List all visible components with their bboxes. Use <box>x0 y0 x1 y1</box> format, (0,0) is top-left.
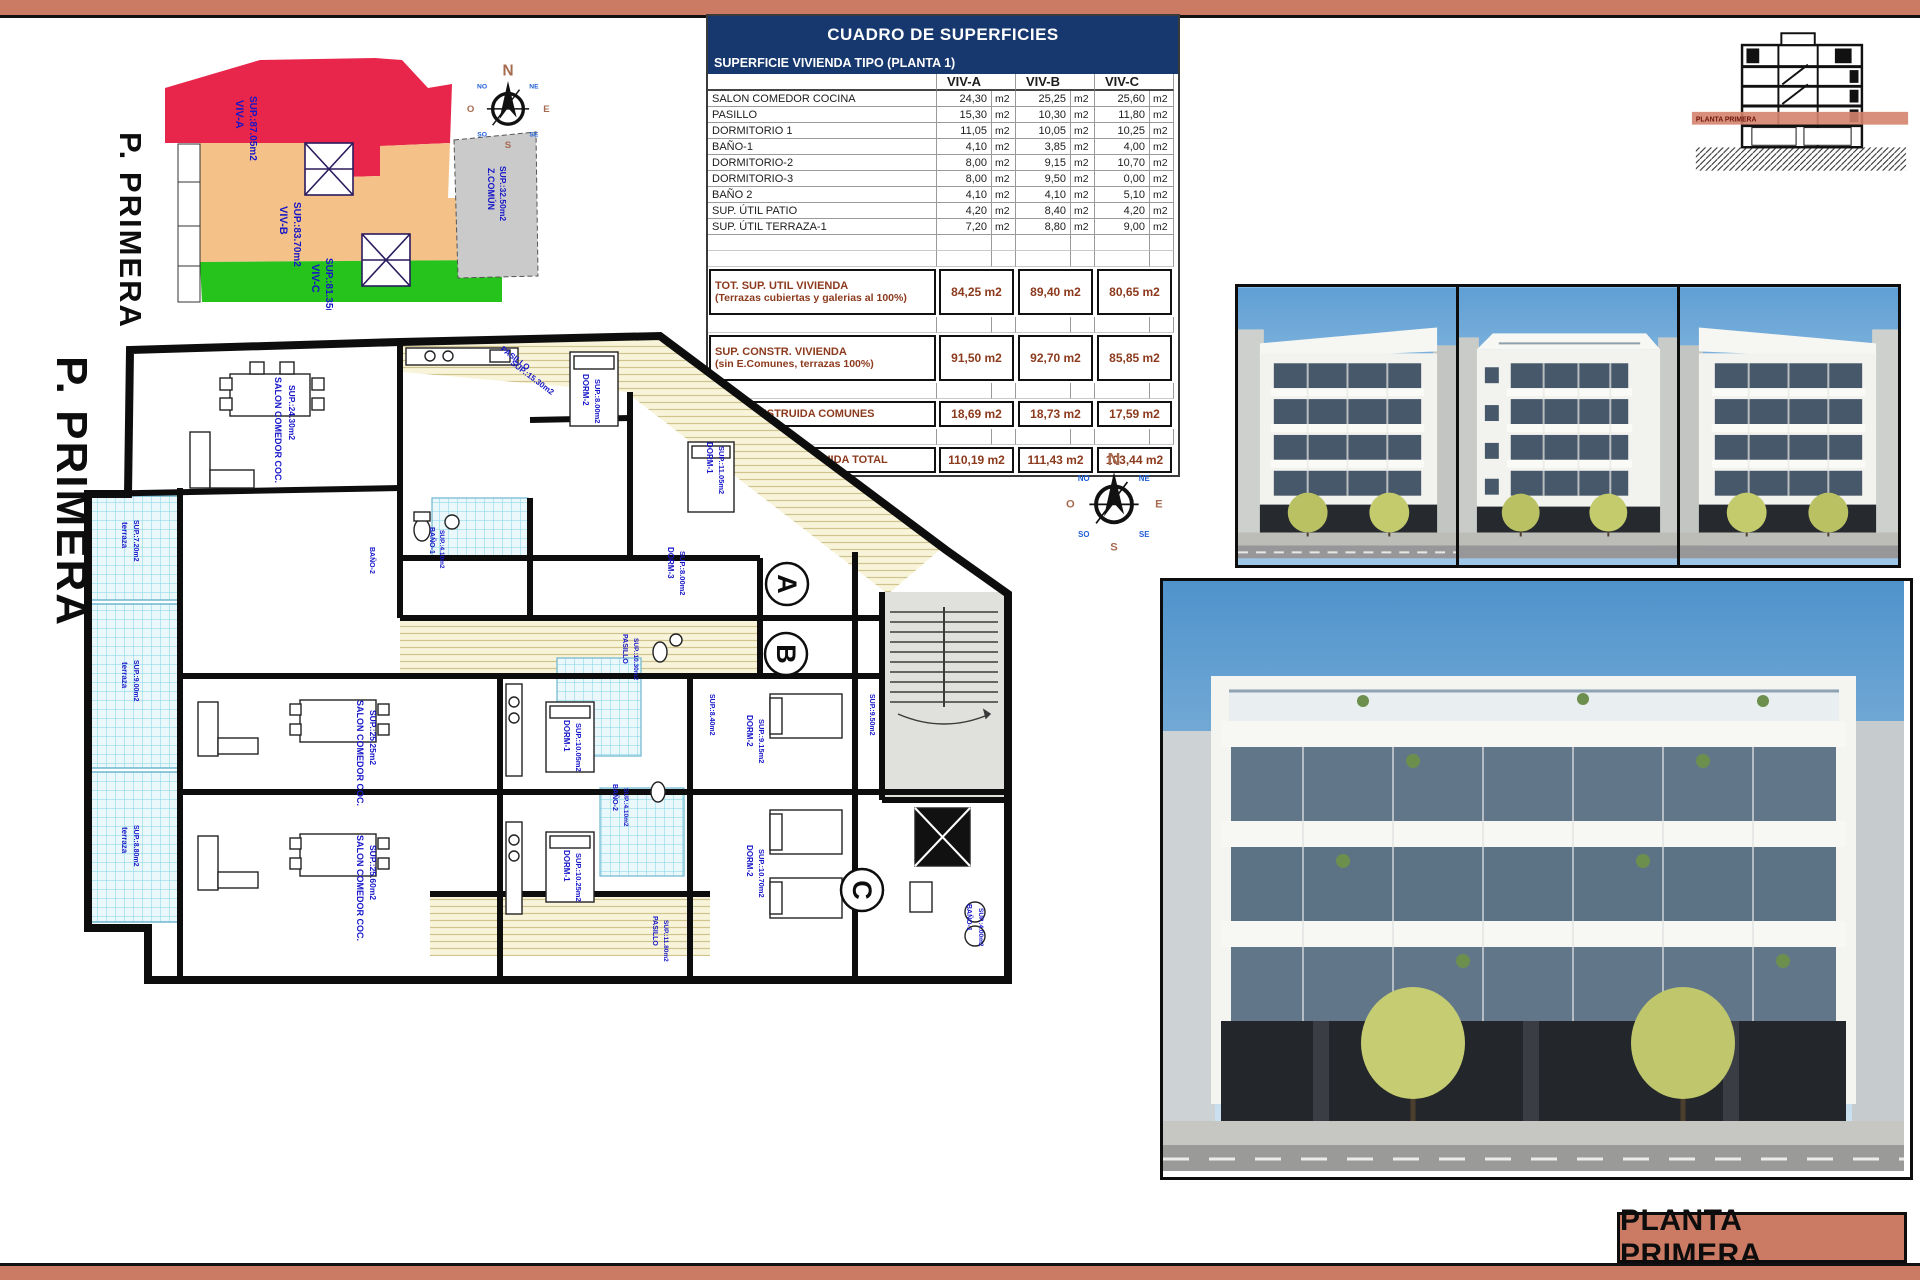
unit-cell: m2 <box>1150 203 1174 219</box>
total-value-cell: 84,25 m2 <box>939 269 1014 315</box>
zone-viv-b-label: VIV-B <box>277 206 289 235</box>
room-label: SALON COMEDOR COC. <box>355 700 365 806</box>
unit-cell: m2 <box>992 171 1016 187</box>
value-cell: 15,30 <box>937 107 992 123</box>
floor-plan-drawing: SALON COMEDOR COC.SUP.:24.30m2PASILLOSUP… <box>70 322 1020 994</box>
total-value-cell: 18,73 m2 <box>1018 401 1093 427</box>
section-band-label: PLANTA PRIMERA <box>1696 117 1757 124</box>
compass-no: NO <box>1078 474 1090 483</box>
spacer-cell <box>1071 383 1095 399</box>
compass-ne: NE <box>1139 474 1150 483</box>
unit-cell: m2 <box>1150 171 1174 187</box>
row-label: SUP. ÚTIL TERRAZA-1 <box>708 219 937 235</box>
zone-viv-b-area: SUP.:83.70m2 <box>291 202 302 267</box>
areas-table-subtitle: SUPERFICIE VIVIENDA TIPO (PLANTA 1) <box>708 53 1178 74</box>
value-cell: 0,00 <box>1095 171 1150 187</box>
room-label: SUP.:10.05m2 <box>574 723 583 772</box>
room-label: DORM-2 <box>745 715 754 747</box>
total-row-label: TOT. SUP. UTIL VIVIENDA(Terrazas cubiert… <box>709 269 936 315</box>
compass-ne: NE <box>529 84 539 91</box>
facade-render-1 <box>1238 287 1459 565</box>
table-corner-cell <box>708 74 937 91</box>
value-cell: 4,00 <box>1095 139 1150 155</box>
spacer-cell <box>1095 429 1150 445</box>
compass-se: SE <box>1139 530 1149 539</box>
spacer-cell <box>1016 317 1071 333</box>
unit-cell: m2 <box>1071 91 1095 107</box>
room-label: SUP.:9.00m2 <box>132 660 139 702</box>
spacer-cell <box>708 235 937 251</box>
value-cell: 9,15 <box>1016 155 1071 171</box>
facade-render-3 <box>1680 287 1898 565</box>
compass-so: SO <box>1078 530 1089 539</box>
unit-marker-letter: A <box>772 574 802 594</box>
unit-cell: m2 <box>992 155 1016 171</box>
unit-cell: m2 <box>1150 219 1174 235</box>
compass-e: E <box>543 104 550 115</box>
room-label: SUP.:9.15m2 <box>757 719 766 763</box>
unit-cell: m2 <box>1071 219 1095 235</box>
value-cell: 25,25 <box>1016 91 1071 107</box>
room-label: SUP.:24.30m2 <box>287 385 297 440</box>
spacer-cell <box>1150 429 1174 445</box>
spacer-cell <box>1071 251 1095 267</box>
row-label: PASILLO <box>708 107 937 123</box>
room-label: SUP.:8.40m2 <box>708 694 715 736</box>
total-value-cell: 85,85 m2 <box>1097 335 1172 381</box>
spacer-cell <box>1071 235 1095 251</box>
row-label: DORMITORIO-3 <box>708 171 937 187</box>
value-cell: 8,80 <box>1016 219 1071 235</box>
value-cell: 4,20 <box>937 203 992 219</box>
room-label: DORM-1 <box>705 442 714 474</box>
unit-cell: m2 <box>992 139 1016 155</box>
compass-n: N <box>1108 449 1121 469</box>
room-label: SUP.:10.25m2 <box>574 853 583 902</box>
spacer-cell <box>992 235 1016 251</box>
value-cell: 10,05 <box>1016 123 1071 139</box>
compass-needle <box>1089 472 1138 524</box>
spacer-cell <box>1095 317 1150 333</box>
value-cell: 11,80 <box>1095 107 1150 123</box>
compass-s: S <box>1110 541 1118 553</box>
zone-comun-label: Z.COMÚN <box>486 168 497 210</box>
unit-cell: m2 <box>1071 203 1095 219</box>
section-ground-hatch <box>1696 147 1906 171</box>
spacer-cell <box>1016 429 1071 445</box>
room-label: SALON COMEDOR COC. <box>273 377 283 483</box>
total-value-cell: 92,70 m2 <box>1018 335 1093 381</box>
zone-comun-area: SUP.:32.50m2 <box>498 166 508 221</box>
sheet-title: PLANTA PRIMERA <box>1620 1204 1888 1272</box>
value-cell: 4,10 <box>937 187 992 203</box>
value-cell: 4,10 <box>937 139 992 155</box>
room-label: SUP.:4.10m2 <box>438 530 445 569</box>
spacer-cell <box>1016 251 1071 267</box>
row-label: BAÑO-1 <box>708 139 937 155</box>
value-cell: 24,30 <box>937 91 992 107</box>
unit-marker-letter: C <box>847 880 877 900</box>
unit-cell: m2 <box>1150 187 1174 203</box>
facade-render-1-image <box>1238 287 1456 559</box>
room-label: DORM-2 <box>581 374 590 406</box>
value-cell: 4,10 <box>1016 187 1071 203</box>
value-cell: 10,30 <box>1016 107 1071 123</box>
main-facade-render <box>1160 578 1913 1180</box>
storefront <box>1221 1021 1846 1121</box>
spacer-cell <box>1071 429 1095 445</box>
compass-se: SE <box>529 132 538 139</box>
row-label: DORMITORIO-2 <box>708 155 937 171</box>
unit-cell: m2 <box>992 219 1016 235</box>
section-building <box>1742 33 1862 147</box>
room-label: SUP.:11.80m2 <box>662 920 669 962</box>
unit-cell: m2 <box>1150 155 1174 171</box>
total-value-cell: 80,65 m2 <box>1097 269 1172 315</box>
room-label: BAÑO-2 <box>611 784 620 811</box>
room-label: terraza <box>120 827 129 854</box>
room-label: SUP.:9.50m2 <box>868 694 875 736</box>
spacer-cell <box>937 235 992 251</box>
room-label: SUP.:10.30m2 <box>632 638 639 681</box>
unit-cell: m2 <box>992 123 1016 139</box>
room-label: SUP.:10.70m2 <box>757 849 766 898</box>
spacer-cell <box>1071 317 1095 333</box>
room-label: terraza <box>120 662 129 689</box>
compass-e: E <box>1155 499 1163 511</box>
room-label: DORM-1 <box>562 720 571 752</box>
row-label: SUP. ÚTIL PATIO <box>708 203 937 219</box>
facade-render-3-image <box>1680 287 1898 559</box>
room-label: SUP.:8.00m2 <box>678 551 687 595</box>
value-cell: 9,00 <box>1095 219 1150 235</box>
zone-viv-a-label: VIV-A <box>233 100 245 129</box>
column-header: VIV-B <box>1016 74 1095 91</box>
zone-viv-c-area: SUP.:81.35m2 <box>323 258 334 310</box>
room-label: SUP.:25.60m2 <box>368 845 378 900</box>
compass-so: SO <box>477 132 487 139</box>
spacer-cell <box>1150 235 1174 251</box>
room-label: BAÑO-1 <box>965 904 974 931</box>
value-cell: 10,25 <box>1095 123 1150 139</box>
unit-cell: m2 <box>992 187 1016 203</box>
room-label: SUP.:4.00m2 <box>977 908 984 947</box>
room-label: DORM-3 <box>666 547 675 579</box>
value-cell: 10,70 <box>1095 155 1150 171</box>
value-cell: 4,20 <box>1095 203 1150 219</box>
column-header: VIV-C <box>1095 74 1174 91</box>
unit-cell: m2 <box>1071 171 1095 187</box>
unit-cell: m2 <box>1150 107 1174 123</box>
total-value-cell: 89,40 m2 <box>1018 269 1093 315</box>
room-label: DORM-1 <box>562 850 571 882</box>
floor-bands <box>1221 721 1846 1021</box>
unit-cell: m2 <box>992 107 1016 123</box>
compass-n: N <box>502 62 513 79</box>
spacer-cell <box>992 251 1016 267</box>
row-label: DORMITORIO 1 <box>708 123 937 139</box>
room-label: SUP.:7.20m2 <box>132 520 139 562</box>
room-label: SUP.:25.25m2 <box>368 710 378 765</box>
row-label: SALON COMEDOR COCINA <box>708 91 937 107</box>
compass-no: NO <box>477 84 487 91</box>
room-label: PASILLO <box>651 916 658 946</box>
unit-cell: m2 <box>1071 107 1095 123</box>
room-label: SUP.:8.00m2 <box>593 379 602 423</box>
value-cell: 8,00 <box>937 171 992 187</box>
unit-cell: m2 <box>1071 155 1095 171</box>
roof-terrace <box>1229 689 1839 721</box>
spacer-cell <box>1150 317 1174 333</box>
spacer-cell <box>708 251 937 267</box>
row-label: BAÑO 2 <box>708 187 937 203</box>
zone-viv-c-label: VIV-C <box>309 264 321 293</box>
spacer-cell <box>1150 383 1174 399</box>
unit-marker-letter: B <box>771 644 801 664</box>
value-cell: 7,20 <box>937 219 992 235</box>
room-label: SUP.:4.10m2 <box>622 788 629 827</box>
room-label: DORM-2 <box>745 845 754 877</box>
zone-viv-a-area: SUP.:87.05m2 <box>247 96 258 161</box>
unit-cell: m2 <box>1150 91 1174 107</box>
total-value-cell: 17,59 m2 <box>1097 401 1172 427</box>
value-cell: 9,50 <box>1016 171 1071 187</box>
plan-sheet: P. PRIMERA <box>0 0 1920 1280</box>
compass-needle <box>487 81 529 125</box>
main-facade-render-image <box>1163 581 1904 1171</box>
value-cell: 8,00 <box>937 155 992 171</box>
spacer-cell <box>1095 235 1150 251</box>
unit-cell: m2 <box>992 203 1016 219</box>
room-label: SUP.:8.80m2 <box>132 825 139 867</box>
unit-cell: m2 <box>1150 123 1174 139</box>
compass-o: O <box>1066 499 1075 511</box>
unit-cell: m2 <box>1071 139 1095 155</box>
value-cell: 8,40 <box>1016 203 1071 219</box>
spacer-cell <box>1095 383 1150 399</box>
spacer-cell <box>1150 251 1174 267</box>
compass-rose-main: N NE E SE S SO O NO <box>1058 445 1170 557</box>
building-section-drawing: PLANTA PRIMERA <box>1688 28 1914 180</box>
siteplan-left-strip <box>178 144 200 302</box>
unit-cell: m2 <box>1071 123 1095 139</box>
value-cell: 3,85 <box>1016 139 1071 155</box>
room-label: SUP.:11.05m2 <box>717 446 726 494</box>
unit-cell: m2 <box>1071 187 1095 203</box>
compass-s: S <box>505 140 512 151</box>
spacer-cell <box>937 251 992 267</box>
unit-cell: m2 <box>1150 139 1174 155</box>
room-label: SALON COMEDOR COC. <box>355 835 365 941</box>
room-label: BAÑO-2 <box>368 547 377 574</box>
value-cell: 11,05 <box>937 123 992 139</box>
facade-render-2 <box>1459 287 1680 565</box>
column-header: VIV-A <box>937 74 1016 91</box>
room-label: BAÑO-1 <box>428 527 437 554</box>
facade-render-strip <box>1235 284 1901 568</box>
value-cell: 25,60 <box>1095 91 1150 107</box>
room-label: PASILLO <box>621 634 628 664</box>
spacer-cell <box>1095 251 1150 267</box>
zone-viv-c-shape <box>200 260 502 302</box>
areas-table-title: CUADRO DE SUPERFICIES <box>708 16 1178 53</box>
facade-render-2-image <box>1459 287 1677 559</box>
spacer-cell <box>1016 383 1071 399</box>
compass-rose-top: N NE E SE S SO O NO <box>460 58 556 154</box>
unit-cell: m2 <box>992 91 1016 107</box>
compass-o: O <box>467 104 475 115</box>
sheet-title-block: PLANTA PRIMERA <box>1617 1212 1907 1263</box>
room-label: terraza <box>120 522 129 549</box>
value-cell: 5,10 <box>1095 187 1150 203</box>
spacer-cell <box>1016 235 1071 251</box>
